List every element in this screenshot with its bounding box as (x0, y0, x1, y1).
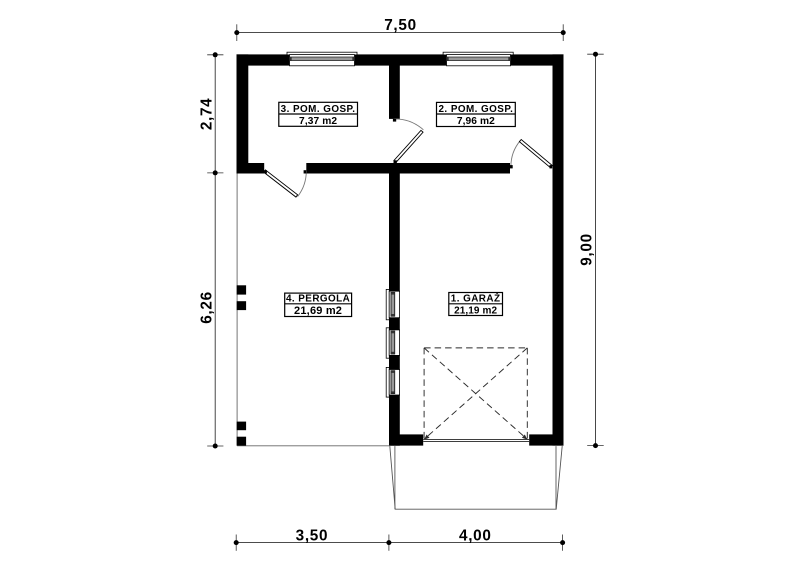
svg-text:3. POM. GOSP.: 3. POM. GOSP. (281, 104, 356, 115)
svg-text:1. GARAŻ: 1. GARAŻ (451, 294, 501, 305)
svg-text:7,50: 7,50 (384, 17, 417, 34)
svg-text:3,50: 3,50 (296, 527, 329, 544)
svg-text:2,74: 2,74 (198, 98, 215, 131)
svg-text:4,00: 4,00 (459, 527, 492, 544)
svg-text:4. PERGOLA: 4. PERGOLA (286, 294, 350, 305)
svg-text:7,96 m2: 7,96 m2 (457, 116, 495, 127)
svg-text:6,26: 6,26 (198, 291, 215, 324)
svg-text:21,19 m2: 21,19 m2 (454, 305, 497, 316)
svg-text:21,69 m2: 21,69 m2 (294, 305, 342, 317)
svg-text:7,37 m2: 7,37 m2 (299, 116, 337, 127)
svg-text:9,00: 9,00 (579, 233, 596, 266)
svg-text:2. POM. GOSP.: 2. POM. GOSP. (438, 104, 513, 115)
